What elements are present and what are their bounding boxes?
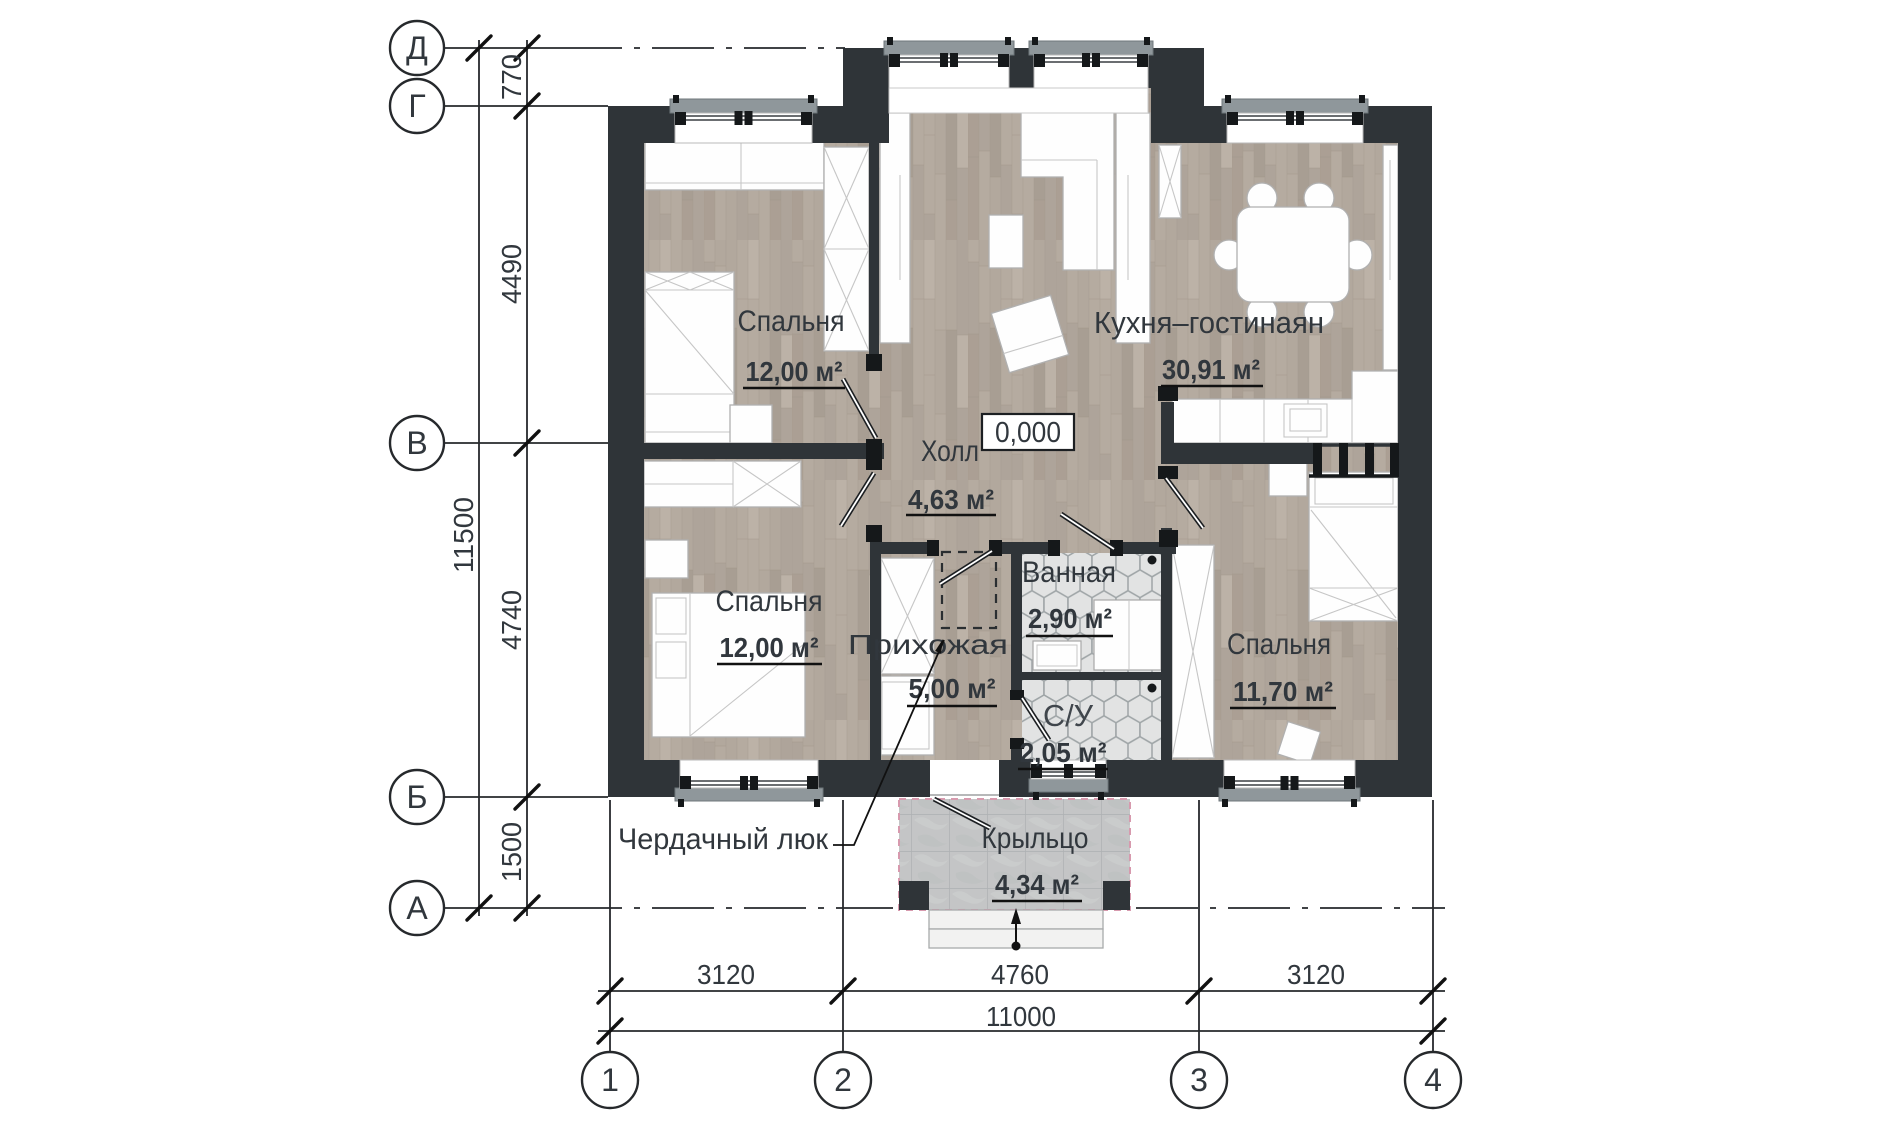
svg-text:Г: Г bbox=[408, 88, 425, 124]
svg-text:Прихожая: Прихожая bbox=[848, 629, 1008, 660]
svg-text:Крыльцо: Крыльцо bbox=[982, 822, 1089, 855]
svg-text:4740: 4740 bbox=[496, 590, 527, 650]
svg-text:11,70 м²: 11,70 м² bbox=[1233, 676, 1333, 707]
svg-text:0,000: 0,000 bbox=[995, 417, 1061, 449]
svg-text:5,00 м²: 5,00 м² bbox=[909, 673, 996, 704]
svg-text:3120: 3120 bbox=[1287, 959, 1345, 990]
svg-text:11500: 11500 bbox=[448, 497, 479, 573]
svg-text:Спальня: Спальня bbox=[1227, 628, 1331, 661]
svg-text:Спальня: Спальня bbox=[738, 305, 845, 338]
svg-text:Кухня–гостинаян: Кухня–гостинаян bbox=[1094, 305, 1324, 340]
svg-text:4,34 м²: 4,34 м² bbox=[995, 869, 1079, 900]
svg-text:1500: 1500 bbox=[496, 822, 527, 882]
svg-text:А: А bbox=[406, 890, 428, 926]
svg-text:2,05 м²: 2,05 м² bbox=[1020, 737, 1107, 768]
svg-text:С/У: С/У bbox=[1043, 698, 1093, 733]
svg-text:4: 4 bbox=[1424, 1062, 1442, 1098]
svg-text:4490: 4490 bbox=[496, 244, 527, 304]
svg-text:3: 3 bbox=[1190, 1062, 1208, 1098]
svg-text:В: В bbox=[406, 425, 427, 461]
svg-text:12,00 м²: 12,00 м² bbox=[746, 356, 843, 387]
svg-text:Б: Б bbox=[407, 779, 428, 815]
svg-text:1: 1 bbox=[601, 1062, 619, 1098]
svg-text:Спальня: Спальня bbox=[716, 585, 823, 618]
svg-text:30,91 м²: 30,91 м² bbox=[1162, 354, 1260, 385]
svg-text:12,00 м²: 12,00 м² bbox=[720, 632, 819, 663]
svg-text:2,90 м²: 2,90 м² bbox=[1028, 603, 1112, 634]
svg-text:3120: 3120 bbox=[697, 959, 755, 990]
svg-text:4,63 м²: 4,63 м² bbox=[908, 484, 994, 515]
svg-text:11000: 11000 bbox=[986, 1001, 1056, 1032]
svg-text:770: 770 bbox=[496, 54, 527, 100]
svg-text:Холл: Холл bbox=[921, 435, 979, 468]
svg-text:Ванная: Ванная bbox=[1022, 556, 1116, 589]
svg-text:2: 2 bbox=[834, 1062, 852, 1098]
svg-text:4760: 4760 bbox=[991, 959, 1049, 990]
svg-text:Чердачный люк: Чердачный люк bbox=[618, 823, 829, 856]
svg-text:Д: Д bbox=[406, 30, 428, 66]
